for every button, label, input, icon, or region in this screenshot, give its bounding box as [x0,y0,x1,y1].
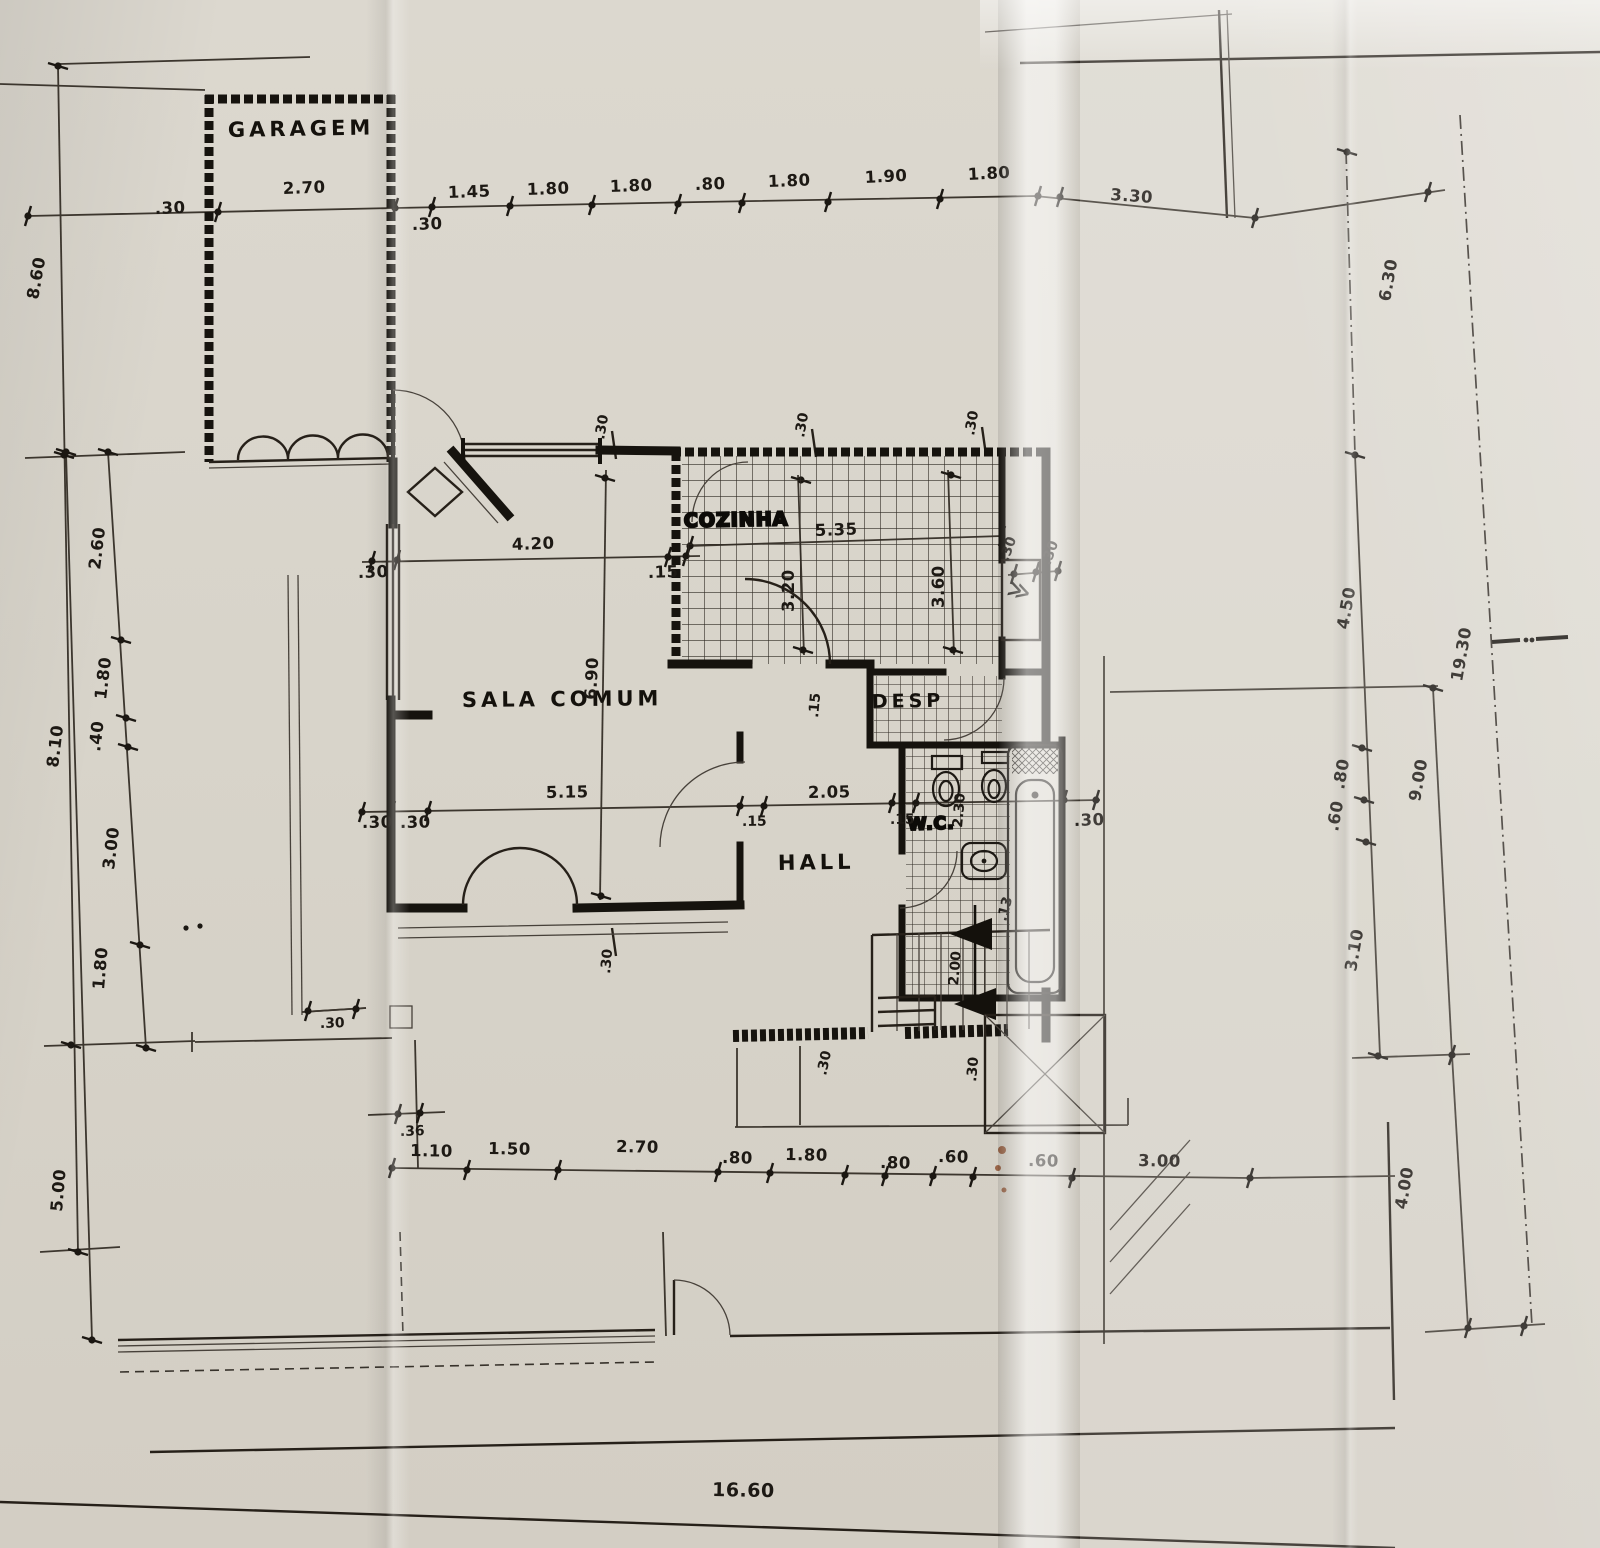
dim-label: .36 [400,1123,425,1140]
dim-label: 4.20 [511,534,554,554]
dim-label: 1.90 [864,166,908,187]
dim-label: .60 [1028,1151,1059,1171]
room-label-desp: DESP [872,690,945,713]
dim-label: .80 [880,1153,911,1173]
dim-label: .30 [592,413,612,440]
hall-bottom-wall [733,1030,1008,1036]
site-boundary-lines [0,10,1600,1548]
dim-label: 3.60 [929,565,948,608]
dim-label: .30 [362,812,393,832]
dim-label: 1.45 [447,182,490,202]
dim-label: 6.90 [581,657,602,701]
tub-shelf-crosshatch [1012,748,1058,774]
dim-label: 16.60 [712,1479,775,1502]
dimension-ticks [24,62,1527,1343]
dim-label: 19.30 [1447,626,1475,683]
dim-label: .60 [1323,799,1347,833]
dim-label: .30 [814,1049,835,1077]
dim-label: .15 [647,562,678,582]
rust-speck [998,1146,1006,1154]
dim-label: 1.80 [609,176,652,196]
dimension-labels: 2.70 .30 .30 1.45 1.80 1.80 .80 1.80 1.9… [23,163,1475,1502]
dim-label: 2.70 [616,1137,659,1157]
sala-left-window [387,524,399,700]
dim-label: 4.50 [1333,585,1359,630]
dim-label: 2.05 [808,782,851,802]
dim-label: .40 [85,720,108,753]
dim-label: 4.00 [1391,1165,1417,1210]
dim-label: .30 [792,411,812,438]
room-label-cozinha: COZINHA [684,508,789,532]
dim-label: .15 [742,814,767,830]
dim-label: 1.80 [91,656,115,701]
dim-label: .30 [320,1015,346,1032]
floor-plan-drawing: GARAGEM SALA COMUM COZINHA DESP HALL W.C… [0,0,1600,1548]
ink-dots [183,925,188,930]
sala-exterior-steps [398,922,728,938]
dim-label: .30 [598,948,616,974]
dim-label: 2.00 [946,950,965,986]
dim-label: 9.00 [1405,757,1431,802]
dim-label: 1.80 [526,179,569,199]
dim-label: 2.70 [282,178,325,198]
double-chevron-icon: ≫ [1004,576,1034,607]
sala-double-door [463,848,577,905]
dim-label: .80 [1329,757,1353,791]
dim-label: .30 [400,812,431,832]
diamond-column [408,468,462,516]
tub-drain [1032,792,1039,799]
room-label-garagem: GARAGEM [228,115,375,142]
dim-label: 1.10 [410,1141,453,1161]
porch-arches [238,434,388,460]
dim-label: .80 [722,1148,753,1168]
dim-label: .30 [964,1056,982,1082]
dim-label: 3.00 [99,826,123,871]
dim-label: 1.80 [967,163,1011,184]
dim-label: 8.60 [23,255,49,300]
dim-label: 3.30 [1110,185,1154,207]
dim-label: 1.80 [767,171,810,191]
dim-label: 6.30 [1375,257,1401,302]
dim-label: 5.15 [546,782,589,802]
dim-label: 3.10 [1341,927,1367,972]
room-label-hall: HALL [778,850,855,875]
dim-label: 2.60 [85,526,109,571]
dim-label: 1.80 [785,1145,828,1165]
room-label-sala-comum: SALA COMUM [462,686,663,712]
dim-label: 3.20 [779,569,798,612]
dim-label: .80 [694,174,725,194]
kitchen-tiles [682,456,1002,664]
dim-label: 3.00 [1138,1151,1181,1171]
dim-label: 5.00 [47,1168,70,1212]
sala-bottom-wall [391,905,740,908]
dim-label: .30 [962,409,982,436]
dim-label: 1.80 [89,946,112,990]
dim-label: .30 [411,214,442,234]
dim-label: .60 [938,1147,969,1167]
dim-label: 5.35 [814,520,857,540]
dim-label: .30 [357,562,388,582]
dim-label: .15 [806,692,824,718]
dim-label: 2.30 [950,792,969,828]
dim-label: .15 [890,812,915,828]
hall-door-swing [660,762,745,847]
dim-label: 8.10 [43,724,67,769]
scanned-floor-plan-paper: GARAGEM SALA COMUM COZINHA DESP HALL W.C… [0,0,1600,1548]
dim-label: .30 [154,198,185,218]
sala-top-window [463,444,600,456]
dim-label: 1.50 [488,1139,531,1159]
dim-label: .30 [1073,810,1104,830]
